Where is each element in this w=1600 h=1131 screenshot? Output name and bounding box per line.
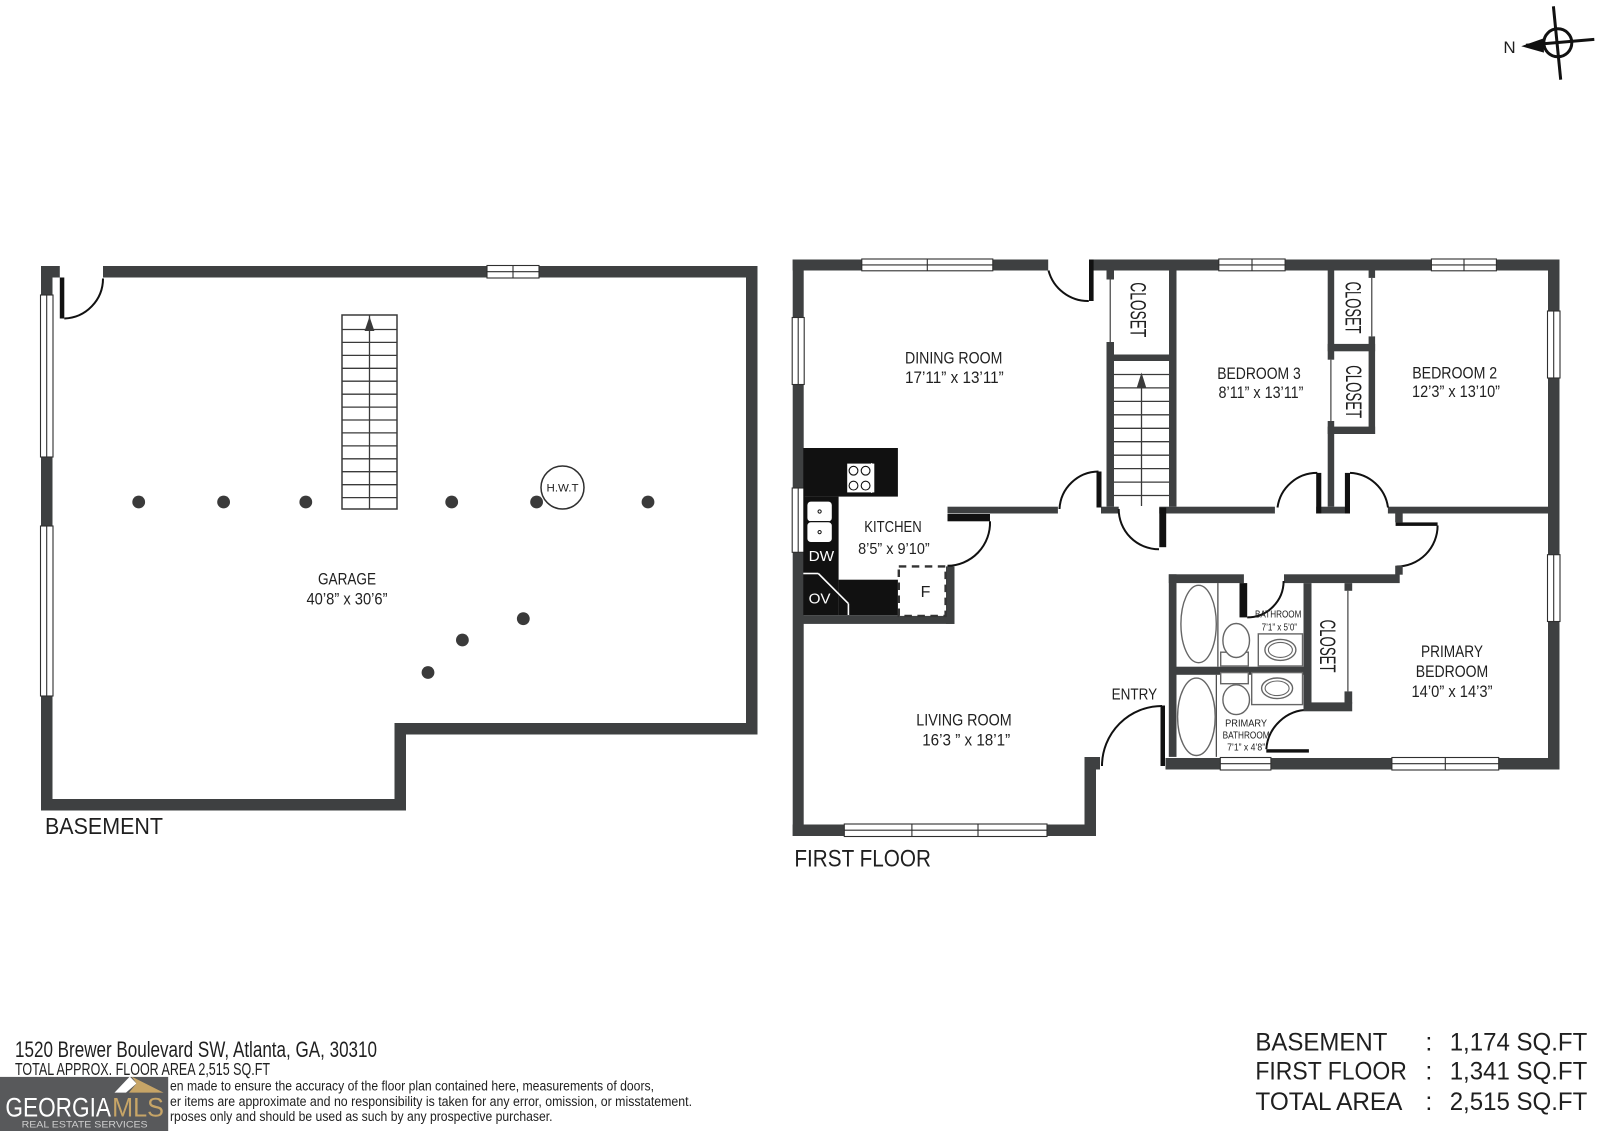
- svg-text:REAL ESTATE SERVICES: REAL ESTATE SERVICES: [22, 1120, 148, 1130]
- svg-text:CLOSET: CLOSET: [1315, 620, 1340, 673]
- svg-text:BASEMENT: BASEMENT: [1255, 1028, 1387, 1056]
- svg-text:OV: OV: [809, 591, 831, 608]
- svg-text:GEORGIA: GEORGIA: [5, 1092, 111, 1122]
- svg-text:FIRST FLOOR: FIRST FLOOR: [794, 846, 931, 873]
- svg-text::: :: [1425, 1028, 1432, 1056]
- svg-text:FIRST FLOOR: FIRST FLOOR: [1255, 1058, 1407, 1086]
- svg-text:LIVING ROOM: LIVING ROOM: [916, 711, 1012, 730]
- svg-text:PRIMARY: PRIMARY: [1421, 642, 1483, 661]
- svg-text:CLOSET: CLOSET: [1341, 365, 1366, 418]
- svg-text:er items are approximate and n: er items are approximate and no responsi…: [170, 1094, 692, 1109]
- svg-text:8’5” x 9’10”: 8’5” x 9’10”: [858, 541, 930, 558]
- svg-text::: :: [1425, 1058, 1432, 1086]
- svg-text:H.W.T: H.W.T: [547, 483, 579, 495]
- svg-text:8’11” x 13’11”: 8’11” x 13’11”: [1219, 383, 1304, 402]
- svg-text:1,341 SQ.FT: 1,341 SQ.FT: [1450, 1058, 1588, 1086]
- svg-text:16’3 ” x 18’1”: 16’3 ” x 18’1”: [922, 731, 1010, 750]
- svg-text:PRIMARY: PRIMARY: [1225, 717, 1267, 729]
- svg-text:ENTRY: ENTRY: [1112, 687, 1158, 704]
- svg-text:2,515 SQ.FT: 2,515 SQ.FT: [1450, 1088, 1588, 1116]
- svg-text:CLOSET: CLOSET: [1340, 282, 1365, 334]
- svg-text:BATHROOM: BATHROOM: [1255, 609, 1301, 621]
- svg-text::: :: [1425, 1088, 1432, 1116]
- svg-text:GARAGE: GARAGE: [318, 570, 376, 589]
- svg-text:TOTAL AREA: TOTAL AREA: [1255, 1088, 1402, 1116]
- svg-text:BEDROOM 3: BEDROOM 3: [1217, 364, 1301, 383]
- svg-text:DINING ROOM: DINING ROOM: [905, 349, 1002, 368]
- svg-text:12’3” x 13’10”: 12’3” x 13’10”: [1412, 382, 1500, 401]
- svg-text:KITCHEN: KITCHEN: [864, 519, 921, 536]
- svg-text:en made to ensure the accuracy: en made to ensure the accuracy of the fl…: [170, 1078, 654, 1093]
- svg-text:MLS: MLS: [112, 1092, 164, 1122]
- svg-text:BATHROOM: BATHROOM: [1223, 730, 1270, 742]
- svg-text:rposes only and should be used: rposes only and should be used as such b…: [170, 1109, 553, 1124]
- svg-text:7’1” x 5’0”: 7’1” x 5’0”: [1262, 622, 1298, 634]
- svg-text:1,174 SQ.FT: 1,174 SQ.FT: [1450, 1028, 1588, 1056]
- svg-text:BASEMENT: BASEMENT: [45, 813, 163, 839]
- svg-text:N: N: [1503, 38, 1515, 57]
- svg-text:14’0” x 14’3”: 14’0” x 14’3”: [1412, 682, 1493, 701]
- svg-text:CLOSET: CLOSET: [1125, 282, 1150, 337]
- svg-text:17’11” x 13’11”: 17’11” x 13’11”: [905, 368, 1004, 387]
- svg-text:F: F: [921, 584, 931, 601]
- svg-text:BEDROOM 2: BEDROOM 2: [1412, 364, 1497, 383]
- svg-text:TOTAL APPROX. FLOOR AREA 2,515: TOTAL APPROX. FLOOR AREA 2,515 SQ.FT: [15, 1059, 270, 1079]
- svg-text:7’1” x 4’8”: 7’1” x 4’8”: [1227, 742, 1265, 754]
- svg-text:DW: DW: [809, 548, 835, 565]
- svg-text:40’8” x 30’6”: 40’8” x 30’6”: [307, 589, 388, 608]
- svg-text:BEDROOM: BEDROOM: [1416, 662, 1489, 681]
